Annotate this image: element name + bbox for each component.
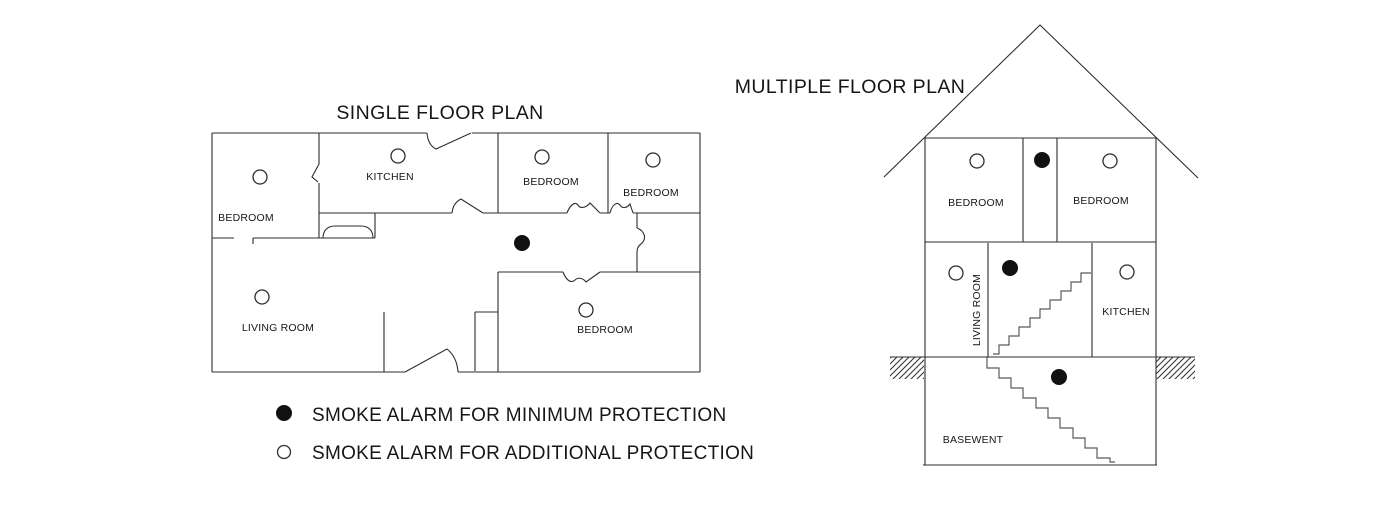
smoke-alarm-additional-icon xyxy=(278,446,291,459)
diagram-svg: SINGLE FLOOR PLAN BEDROOM KITCHEN BEDROO… xyxy=(0,0,1400,520)
smoke-alarm-additional-icon xyxy=(949,266,963,280)
smoke-alarm-placement-diagram: SINGLE FLOOR PLAN BEDROOM KITCHEN BEDROO… xyxy=(0,0,1400,520)
room-label-living-room-vertical: LIVING ROOM xyxy=(971,274,983,346)
smoke-alarm-minimum-icon xyxy=(1003,261,1018,276)
smoke-alarm-additional-icon xyxy=(1103,154,1117,168)
door-break-symbols xyxy=(312,164,644,282)
legend: SMOKE ALARM FOR MINIMUM PROTECTION SMOKE… xyxy=(277,405,755,464)
closet-arch xyxy=(323,226,373,238)
ground-hatch-left xyxy=(890,357,924,379)
smoke-alarm-additional-icon xyxy=(970,154,984,168)
smoke-alarm-additional-icon xyxy=(253,170,267,184)
smoke-alarm-additional-icon xyxy=(535,150,549,164)
ground-hatch-right xyxy=(1156,357,1195,379)
smoke-alarm-additional-icon xyxy=(391,149,405,163)
stairs-basement xyxy=(987,357,1115,462)
smoke-alarm-additional-icon xyxy=(1120,265,1134,279)
multiple-floor-plan-title: MULTIPLE FLOOR PLAN xyxy=(735,76,965,98)
single-plan-outer-walls xyxy=(212,133,700,372)
single-plan-interior-walls xyxy=(212,133,700,372)
alarm-markers xyxy=(253,149,1134,385)
multiple-plan-walls xyxy=(890,138,1195,465)
room-label-bedroom-top-middle: BEDROOM xyxy=(523,176,579,188)
room-label-bedroom-top-right: BEDROOM xyxy=(623,187,679,199)
smoke-alarm-minimum-icon xyxy=(1052,370,1067,385)
room-label-basement: BASEWENT xyxy=(943,434,1004,446)
room-label-living-room: LIVING ROOM xyxy=(242,322,314,334)
legend-label-additional: SMOKE ALARM FOR ADDITIONAL PROTECTION xyxy=(312,443,754,464)
single-floor-plan-title: SINGLE FLOOR PLAN xyxy=(336,102,543,124)
room-label-kitchen-multiple: KITCHEN xyxy=(1102,306,1150,318)
room-label-bedroom-bottom: BEDROOM xyxy=(577,324,633,336)
smoke-alarm-additional-icon xyxy=(579,303,593,317)
smoke-alarm-minimum-icon xyxy=(1035,153,1050,168)
multiple-floor-plan: MULTIPLE FLOOR PLAN BEDROOM BEDROOM LIVI… xyxy=(735,25,1198,465)
room-label-bedroom-right: BEDROOM xyxy=(1073,195,1129,207)
single-floor-plan: SINGLE FLOOR PLAN BEDROOM KITCHEN BEDROO… xyxy=(212,102,700,372)
smoke-alarm-additional-icon xyxy=(255,290,269,304)
door-swing-bottom-entry xyxy=(405,349,458,372)
stairs-middle-floor xyxy=(993,273,1091,354)
room-label-bedroom-left: BEDROOM xyxy=(948,197,1004,209)
room-label-kitchen: KITCHEN xyxy=(366,171,414,183)
smoke-alarm-minimum-icon xyxy=(277,406,292,421)
door-swing-top-entry xyxy=(427,133,471,149)
door-swing-kitchen xyxy=(452,199,483,213)
smoke-alarm-additional-icon xyxy=(646,153,660,167)
legend-label-minimum: SMOKE ALARM FOR MINIMUM PROTECTION xyxy=(312,405,727,426)
smoke-alarm-minimum-icon xyxy=(515,236,530,251)
room-label-bedroom-top-left: BEDROOM xyxy=(218,212,274,224)
